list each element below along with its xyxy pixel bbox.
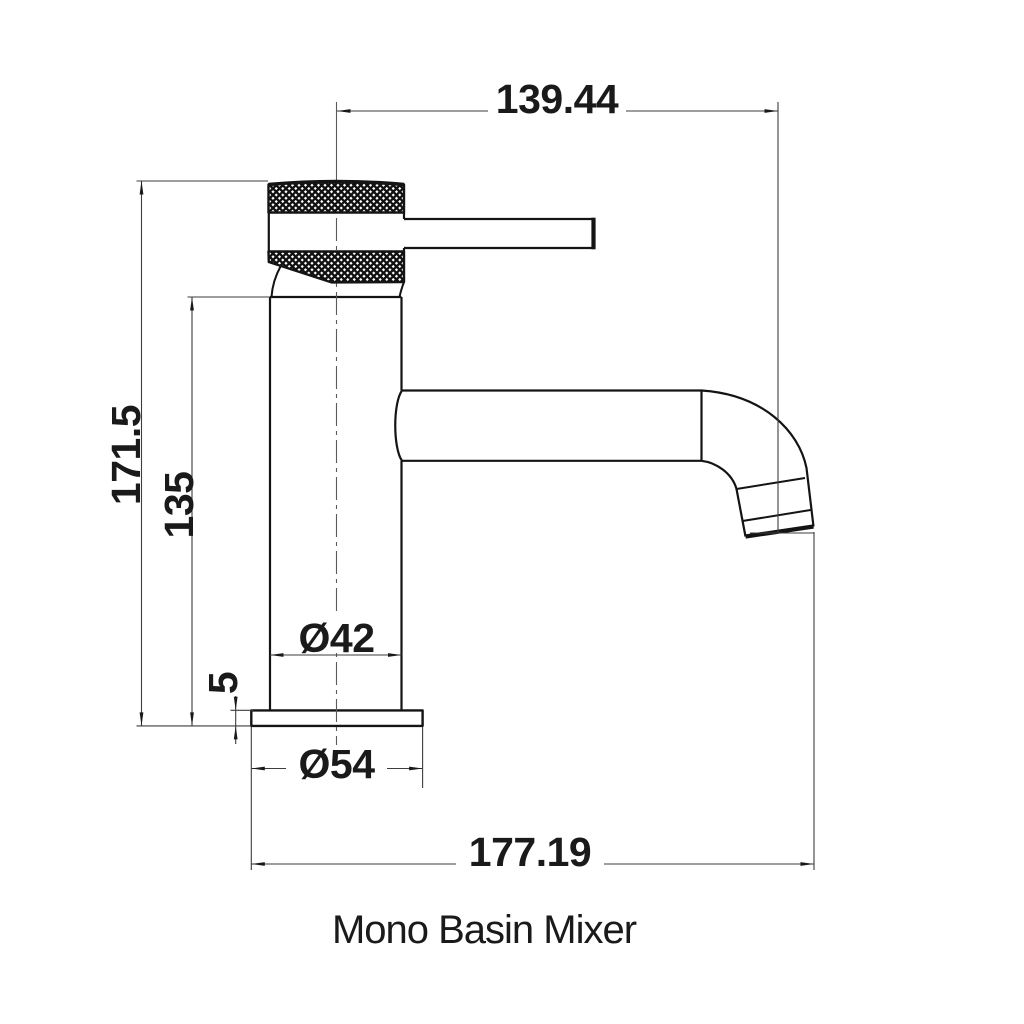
svg-text:5: 5 <box>200 672 246 694</box>
svg-text:Ø42: Ø42 <box>299 615 375 661</box>
svg-text:Ø54: Ø54 <box>299 741 376 787</box>
svg-text:177.19: 177.19 <box>469 829 591 875</box>
svg-text:Mono Basin Mixer: Mono Basin Mixer <box>332 908 637 952</box>
svg-text:139.44: 139.44 <box>496 76 619 122</box>
svg-text:171.5: 171.5 <box>103 405 149 505</box>
svg-text:135: 135 <box>156 472 202 539</box>
